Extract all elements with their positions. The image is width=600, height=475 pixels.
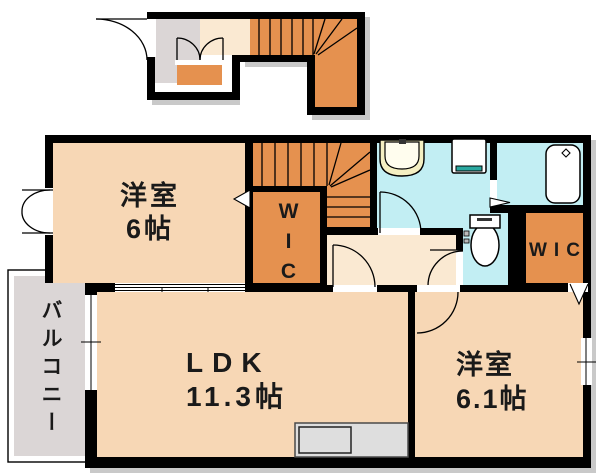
wic-hall-label: WIC bbox=[276, 200, 300, 290]
first-floor-stair-column bbox=[315, 55, 357, 107]
entry-landing bbox=[200, 19, 250, 55]
bedroom1-casement-window-icon bbox=[22, 188, 53, 235]
ldk-name: LDK bbox=[186, 346, 287, 380]
bedroom1-size: 6帖 bbox=[70, 213, 230, 246]
ldk-size: 11.3帖 bbox=[186, 380, 287, 414]
ldk-label: LDK 11.3帖 bbox=[186, 346, 287, 414]
step-gap bbox=[175, 60, 224, 65]
bedroom1-name: 洋室 bbox=[70, 180, 230, 213]
first-floor-block bbox=[96, 12, 370, 120]
balcony-label: バルコニー bbox=[35, 299, 65, 459]
bedroom2-label: 洋室 6.1帖 bbox=[456, 348, 529, 416]
bedroom1-ldk-sliding-partition-icon bbox=[115, 283, 245, 292]
entry-door-icon bbox=[96, 19, 156, 60]
wic-bedroom2-label: WIC bbox=[529, 240, 587, 262]
bedroom1-label: 洋室 6帖 bbox=[70, 180, 230, 246]
kitchen-counter-icon bbox=[295, 423, 408, 457]
stairs-2f-upper bbox=[253, 143, 327, 186]
entry-step bbox=[177, 65, 222, 85]
hall-floor bbox=[327, 235, 456, 285]
floorplan-canvas: 洋室 6帖 WIC LDK 11.3帖 洋室 6.1帖 WIC バルコニー bbox=[0, 0, 600, 475]
stairs-2f-flight bbox=[327, 143, 370, 227]
washbasin-icon bbox=[380, 139, 424, 176]
bathtub-icon bbox=[546, 145, 580, 203]
bedroom2-size: 6.1帖 bbox=[456, 382, 529, 416]
bedroom2-name: 洋室 bbox=[456, 348, 529, 382]
washing-machine-pan-icon bbox=[452, 139, 486, 173]
